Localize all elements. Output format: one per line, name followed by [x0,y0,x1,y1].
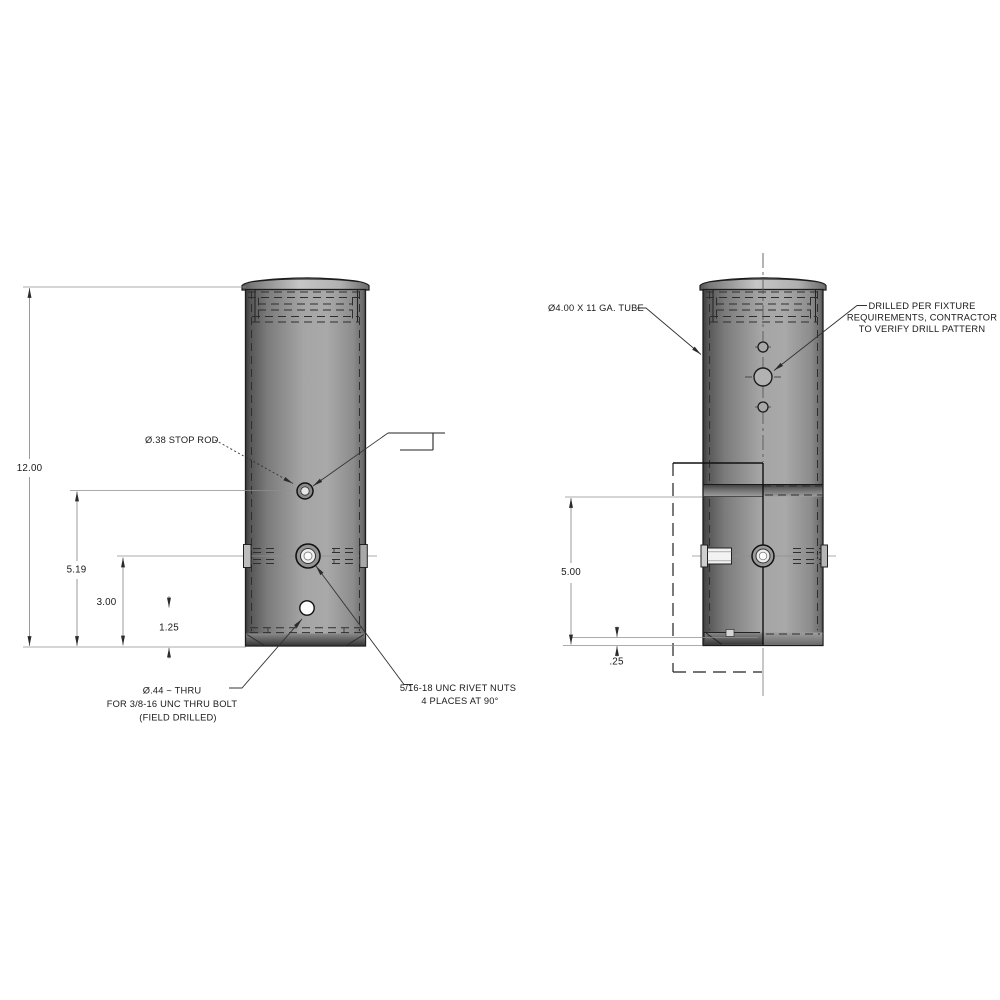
tube-label-leader [637,308,701,355]
left-tube-body [246,290,366,647]
dim-12-00: 12.00 [17,288,43,646]
dim-3-00: 3.00 [97,558,123,646]
stop-rod-hole [297,483,313,499]
thru-hole-label-line3: (FIELD DRILLED) [139,713,216,723]
dim-1-25: 1.25 [159,596,179,659]
drill-pattern-label-line2: REQUIREMENTS, CONTRACTOR [847,313,997,323]
drill-pattern-label: DRILLED PER FIXTURE REQUIREMENTS, CONTRA… [847,301,997,334]
rivet-nuts-label-line1: 5/16-18 UNC RIVET NUTS [400,683,516,693]
dim-hole-height: 1.25 [159,623,179,634]
tube-size-label: Ø4.00 X 11 GA. TUBE [548,303,644,313]
thru-hole-label-line1: Ø.44 ~ THRU [143,686,202,696]
rivet-nuts-label-line2: 4 PLACES AT 90° [421,696,498,706]
stop-rod-label: Ø.38 STOP ROD [145,435,219,445]
thru-hole-label: Ø.44 ~ THRU FOR 3/8-16 UNC THRU BOLT (FI… [107,686,238,723]
drill-pattern-label-line1: DRILLED PER FIXTURE [868,301,975,311]
thru-hole [300,601,314,615]
bottom-notch [726,630,734,637]
dim-overall-height: 12.00 [17,463,43,474]
dim-0-25: .25 [609,627,624,668]
dim-slot-offset: .25 [609,657,624,668]
rivet-nut-hole [296,544,320,568]
dim-5-19: 5.19 [67,492,87,647]
dim-stop-rod-height: 5.19 [67,565,87,576]
drawing-canvas: 12.00 5.19 3.00 1.25 [0,0,1000,1000]
dim-5-00: 5.00 [561,498,581,645]
technical-drawing: 12.00 5.19 3.00 1.25 [0,0,1000,1000]
dim-rivet-height: 3.00 [97,597,117,608]
right-view: 5.00 .25 [548,253,997,696]
left-tube-bottom-band [246,634,365,646]
left-view: 12.00 5.19 3.00 1.25 [17,278,516,723]
dim-slot-height: 5.00 [561,567,581,578]
rivet-nuts-label: 5/16-18 UNC RIVET NUTS 4 PLACES AT 90° [400,683,516,706]
drill-pattern-label-line3: TO VERIFY DRILL PATTERN [859,324,986,334]
thru-hole-label-line2: FOR 3/8-16 UNC THRU BOLT [107,699,238,709]
left-tube-cap [242,278,369,290]
